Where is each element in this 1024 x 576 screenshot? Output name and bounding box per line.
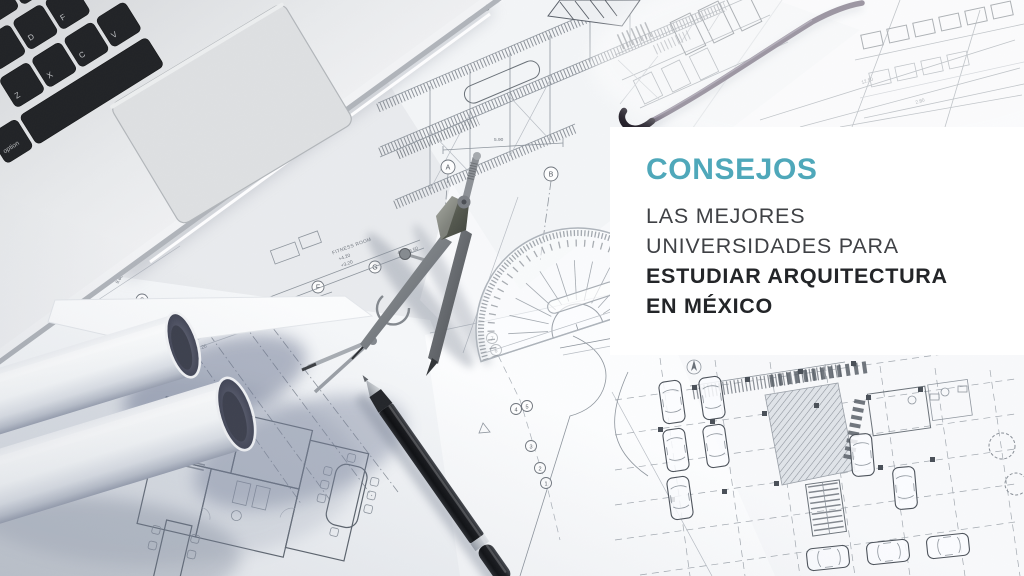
title-line: ESTUDIAR ARQUITECTURA bbox=[646, 261, 1006, 291]
title-line: EN MÉXICO bbox=[646, 291, 1006, 321]
article-title: LAS MEJORES UNIVERSIDADES PARA ESTUDIAR … bbox=[646, 201, 1006, 321]
title-line: UNIVERSIDADES PARA bbox=[646, 231, 1006, 261]
text-overlay-panel: CONSEJOS LAS MEJORES UNIVERSIDADES PARA … bbox=[610, 127, 1024, 355]
hero-image: 9.60 C B C D E 8.20 21.30 4.00 1.50 bbox=[0, 0, 1024, 576]
title-line: LAS MEJORES bbox=[646, 201, 1006, 231]
category-label: CONSEJOS bbox=[646, 153, 1006, 187]
